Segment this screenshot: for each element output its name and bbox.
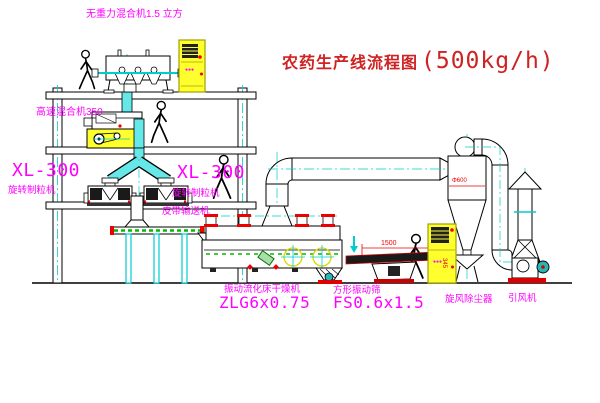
label-granulator-right: 旋转制粒机 — [172, 189, 220, 199]
gravity-free-mixer — [92, 50, 184, 93]
label-xl300-right: XL-300 — [177, 164, 245, 182]
rotary-granulator-left — [84, 178, 136, 206]
cabinet-indicator-lights: ●●● — [433, 260, 442, 265]
diagram-title: 农药生产线流程图 (500kg/h) — [282, 48, 555, 74]
discharge-valve — [325, 273, 333, 281]
dryer-port — [237, 214, 251, 227]
label-screen-model: FS0.6x1.5 — [333, 295, 424, 311]
dryer-port — [295, 214, 309, 227]
process-flow-diagram: 农药生产线流程图 (500kg/h) 无重力混合机1.5 立方 高速混合机350… — [0, 0, 600, 403]
cabinet-indicator-lights: ●●● — [185, 68, 194, 73]
title-text: 农药生产线流程图 — [282, 49, 418, 73]
label-belt-conveyor: 皮带输送机 — [162, 207, 210, 217]
label-xl300-left: XL-300 — [12, 162, 80, 180]
chute — [122, 92, 132, 113]
fluid-bed-dryer — [202, 206, 342, 284]
title-capacity: (500kg/h) — [421, 48, 555, 74]
control-cabinet-ground — [428, 224, 456, 283]
dimension-phi600: Φ600 — [452, 178, 467, 184]
control-cabinet-top — [179, 40, 205, 92]
induced-draft-fan — [508, 258, 549, 283]
person-figure — [152, 101, 168, 142]
label-dryer-model: ZLG6x0.75 — [219, 295, 310, 311]
label-gravity-mixer: 无重力混合机1.5 立方 — [86, 10, 183, 20]
label-hs-mixer: 高速混合机350 — [36, 108, 103, 118]
label-granulator-left: 旋转制粒机 — [8, 186, 56, 196]
label-fan: 引风机 — [508, 294, 537, 304]
dimension-1500: 1500 — [381, 240, 397, 247]
label-cyclone: 旋风除尘器 — [445, 295, 493, 305]
dryer-port — [321, 214, 335, 227]
